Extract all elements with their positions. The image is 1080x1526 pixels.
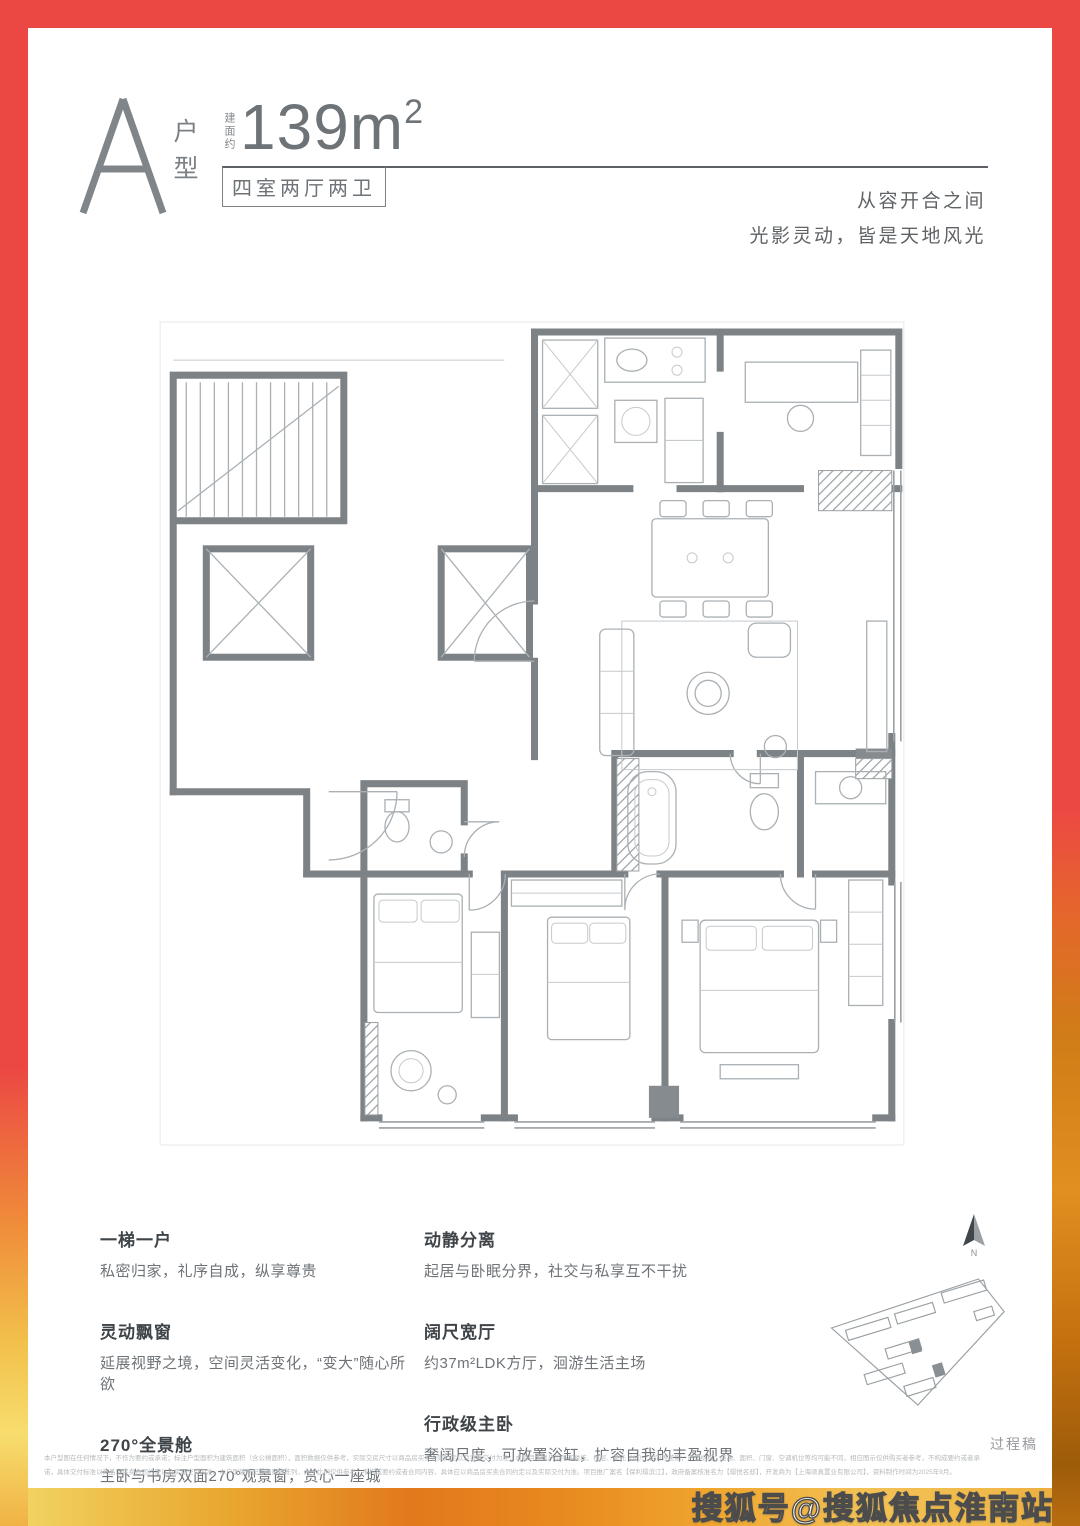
area-value: 139m2 [240,90,424,164]
sohu-watermark: 搜狐号@搜狐焦点淮南站 [692,1483,1054,1526]
floorplan-poster-page: 户型 建面约 139m2 四室两厅两卫 从容开合之间 光影灵动，皆是天地风光 [0,0,1080,1526]
north-arrow-icon: N [956,1212,992,1263]
site-plan-diagram [820,1272,1025,1417]
feature-wide-hall: 阔尺宽厅 约37m²LDK方厅，洄游生活主场 [424,1318,784,1373]
feature-desc: 起居与卧眠分界，社交与私享互不干扰 [424,1260,784,1281]
disclaimer-line-2: 诺，具体交付标准以商品房买卖合同约定以及实际交付为准。本户型装修配置和家具陈列，… [44,1466,1044,1480]
feature-zoning: 动静分离 起居与卧眠分界，社交与私享互不干扰 [424,1226,784,1281]
feature-title: 一梯一户 [100,1226,420,1251]
tagline-line2: 光影灵动，皆是天地风光 [749,221,986,248]
feature-title: 动静分离 [424,1226,784,1251]
draft-version-label: 过程稿 [990,1434,1038,1454]
floor-plan-drawing [158,320,906,1148]
feature-one-elevator: 一梯一户 私密归家，礼序自成，纵享尊贵 [100,1226,420,1281]
room-layout-box: 四室两厅两卫 [222,167,386,207]
svg-text:N: N [971,1248,978,1258]
disclaimer-line-1: 本户型图在任何情况下，不作为要约或承诺；标注户型面积为建筑面积（含公摊面积），面… [44,1452,1044,1466]
feature-title: 行政级主卧 [424,1410,784,1435]
feature-desc: 延展视野之境，空间灵活变化，“变大”随心所欲 [100,1352,420,1394]
unit-type-label: 户型 [166,118,202,192]
area-superscript: 2 [404,93,424,131]
feature-bay-window: 灵动飘窗 延展视野之境，空间灵活变化，“变大”随心所欲 [100,1318,420,1394]
frame-right-orange [1052,0,1080,1526]
feature-desc: 私密归家，礼序自成，纵享尊贵 [100,1260,420,1281]
unit-letter-a-glyph [76,96,170,221]
tagline-line1: 从容开合之间 [857,186,986,213]
feature-title: 灵动飘窗 [100,1318,420,1343]
legal-disclaimer: 本户型图在任何情况下，不作为要约或承诺；标注户型面积为建筑面积（含公摊面积），面… [44,1452,1044,1480]
frame-left-red [0,0,28,1526]
area-number: 139m [240,91,404,163]
frame-top-red [0,0,1080,28]
feature-title: 阔尺宽厅 [424,1318,784,1343]
feature-desc: 约37m²LDK方厅，洄游生活主场 [424,1352,784,1373]
area-prefix-label: 建面约 [221,112,237,151]
